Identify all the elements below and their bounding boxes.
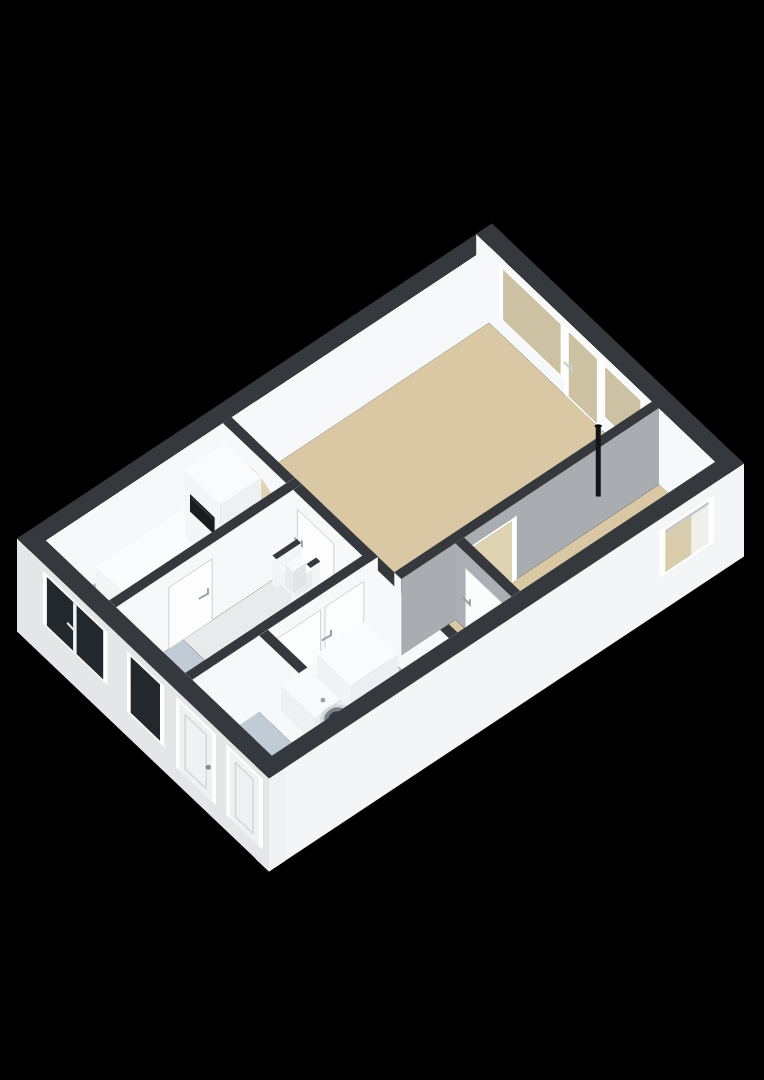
floorplan-svg: [0, 0, 764, 1080]
back-door-frame-right: [512, 516, 517, 583]
floorplan-3d-view: [0, 0, 764, 1080]
front-door-handle: [206, 765, 211, 770]
